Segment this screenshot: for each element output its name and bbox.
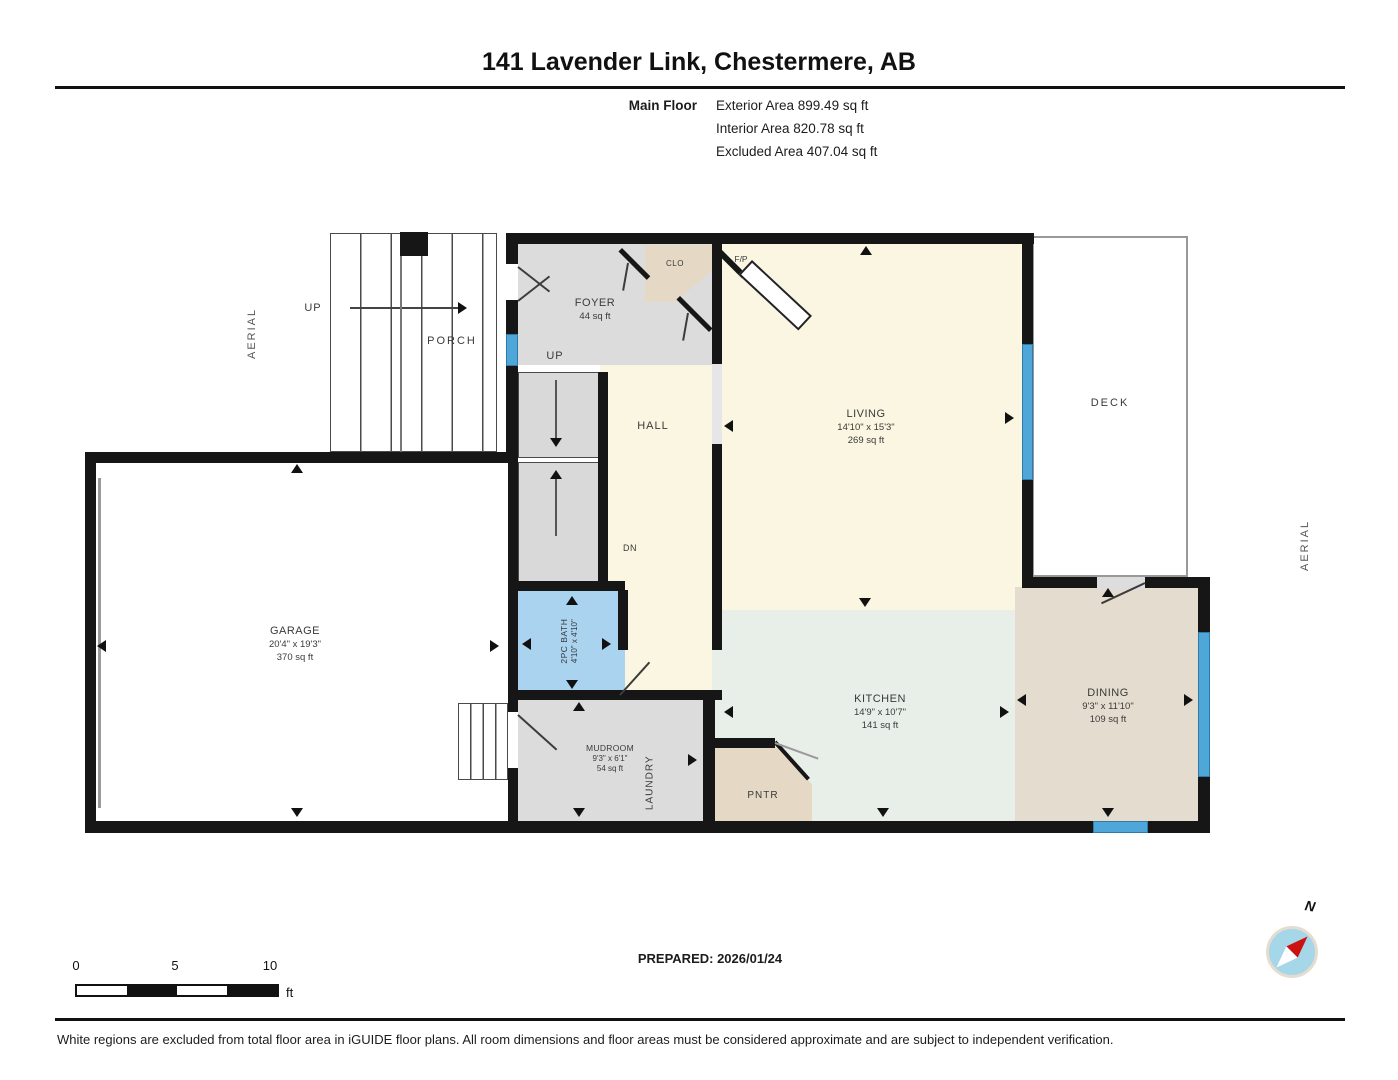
porch-label: PORCH <box>402 334 502 349</box>
hall-label: HALL <box>613 419 693 434</box>
wall-hall-living-a <box>712 244 722 364</box>
wall-garage-right-b <box>508 768 518 821</box>
up-label-interior: UP <box>535 349 575 364</box>
dining-dims: 9'3" x 11'10" <box>1038 701 1178 714</box>
garage-dims: 20'4" x 19'3" <box>225 639 365 652</box>
dimension-arrow <box>97 640 106 652</box>
scale-tick-5: 5 <box>167 957 183 975</box>
dimension-arrow <box>724 420 733 432</box>
garage-name: GARAGE <box>225 624 365 639</box>
living-name: LIVING <box>796 407 936 422</box>
foyer-name: FOYER <box>545 296 645 311</box>
wall-porch-stub <box>400 232 428 256</box>
window-front <box>506 334 518 366</box>
dimension-arrow <box>291 464 303 473</box>
dimension-arrow <box>860 246 872 255</box>
wall-front-left-c <box>506 366 518 463</box>
window-dining-south <box>1093 821 1148 833</box>
porch-boundary-line <box>400 256 402 452</box>
wall-top <box>506 233 1034 244</box>
exterior-area-stat: Exterior Area 899.49 sq ft <box>716 98 868 113</box>
closet-label: CLO <box>658 259 692 270</box>
bath-label: 2PC BATH 4'10" x 4'10" <box>559 591 581 691</box>
wall-hall-living-b <box>712 444 722 650</box>
porch-stairs-arrow-line <box>350 307 460 309</box>
wall-stairs-right <box>598 372 608 581</box>
dimension-arrow <box>1000 706 1009 718</box>
stairs-down-arrow-line <box>555 478 557 536</box>
up-label-exterior: UP <box>293 301 333 316</box>
foyer-area: 44 sq ft <box>545 311 645 324</box>
dimension-arrow <box>688 754 697 766</box>
foyer-label: FOYER 44 sq ft <box>545 296 645 324</box>
wall-garage-top <box>85 452 518 463</box>
stairs-up-arrow-head <box>550 438 562 447</box>
porch-stairs-arrow-head <box>458 302 467 314</box>
dimension-arrow <box>291 808 303 817</box>
wall-dining-top-a <box>1022 577 1097 588</box>
scale-tick-0: 0 <box>68 957 84 975</box>
dining-name: DINING <box>1038 686 1178 701</box>
compass-icon <box>1266 926 1318 978</box>
bath-name: 2PC BATH <box>559 591 570 691</box>
footer-divider <box>55 1018 1345 1021</box>
scale-tick-10: 10 <box>258 957 282 975</box>
north-label: N <box>1304 897 1317 915</box>
wall-garage-right-a <box>508 463 518 712</box>
wall-living-right-a <box>1022 244 1033 344</box>
dimension-arrow <box>1102 808 1114 817</box>
kitchen-name: KITCHEN <box>810 692 950 707</box>
aerial-label-left: AERIAL <box>245 291 260 376</box>
dimension-arrow <box>522 638 531 650</box>
disclaimer-text: White regions are excluded from total fl… <box>57 1032 1357 1047</box>
deck-label: DECK <box>1060 396 1160 411</box>
dimension-arrow <box>859 598 871 607</box>
wall-garage-left <box>85 452 96 833</box>
opening-hall-living <box>712 364 722 444</box>
dimension-arrow <box>1184 694 1193 706</box>
dimension-arrow <box>573 702 585 711</box>
dimension-arrow <box>573 808 585 817</box>
floor-label: Main Floor <box>500 98 697 113</box>
kitchen-label: KITCHEN 14'9" x 10'7" 141 sq ft <box>810 692 950 732</box>
pantry-label: PNTR <box>733 789 793 803</box>
dining-area: 109 sq ft <box>1038 714 1178 727</box>
kitchen-area: 141 sq ft <box>810 720 950 733</box>
wall-dining-right-b <box>1198 777 1210 832</box>
wall-living-right-b <box>1022 480 1033 577</box>
scale-segment <box>77 986 127 995</box>
living-label: LIVING 14'10" x 15'3" 269 sq ft <box>796 407 936 447</box>
dining-label: DINING 9'3" x 11'10" 109 sq ft <box>1038 686 1178 726</box>
prepared-date: PREPARED: 2026/01/24 <box>560 951 860 966</box>
scale-segment <box>227 986 277 995</box>
dimension-arrow <box>1102 588 1114 597</box>
dimension-arrow <box>490 640 499 652</box>
scale-segment <box>127 986 177 995</box>
dimension-arrow <box>724 706 733 718</box>
header-divider <box>55 86 1345 89</box>
living-dims: 14'10" x 15'3" <box>796 422 936 435</box>
page-title: 141 Lavender Link, Chestermere, AB <box>0 48 1398 77</box>
window-dining-east <box>1198 632 1210 777</box>
scale-segment <box>177 986 227 995</box>
bath-dims: 4'10" x 4'10" <box>570 591 581 691</box>
garage-area: 370 sq ft <box>225 652 365 665</box>
wall-bath-top <box>518 581 625 591</box>
wall-dining-right-a <box>1198 577 1210 632</box>
living-area: 269 sq ft <box>796 435 936 448</box>
dimension-arrow <box>877 808 889 817</box>
wall-pantry-top <box>715 738 775 748</box>
fireplace-label: F/P <box>724 254 758 265</box>
down-label: DN <box>615 542 645 554</box>
floor-plan-page: 141 Lavender Link, Chestermere, AB Main … <box>0 0 1398 1080</box>
wall-bath-right <box>618 590 628 650</box>
kitchen-dims: 14'9" x 10'7" <box>810 707 950 720</box>
laundry-label: LAUNDRY <box>643 733 657 833</box>
scale-bar <box>75 984 279 997</box>
exterior-mudroom-stairs <box>458 703 508 780</box>
dimension-arrow <box>602 638 611 650</box>
wall-mudroom-right <box>703 690 715 821</box>
wall-front-left-a <box>506 244 518 264</box>
aerial-label-right: AERIAL <box>1298 503 1313 588</box>
dimension-arrow <box>1005 412 1014 424</box>
stairs-down <box>518 462 600 583</box>
window-living-east <box>1022 344 1033 480</box>
wall-front-left-b <box>506 300 518 334</box>
stairs-down-arrow-head <box>550 470 562 479</box>
stairs-up-arrow-line <box>555 380 557 438</box>
excluded-area-stat: Excluded Area 407.04 sq ft <box>716 144 877 159</box>
garage-label: GARAGE 20'4" x 19'3" 370 sq ft <box>225 624 365 664</box>
wall-bottom-a <box>85 821 1093 833</box>
scale-unit: ft <box>286 985 293 1000</box>
dimension-arrow <box>1017 694 1026 706</box>
interior-area-stat: Interior Area 820.78 sq ft <box>716 121 864 136</box>
